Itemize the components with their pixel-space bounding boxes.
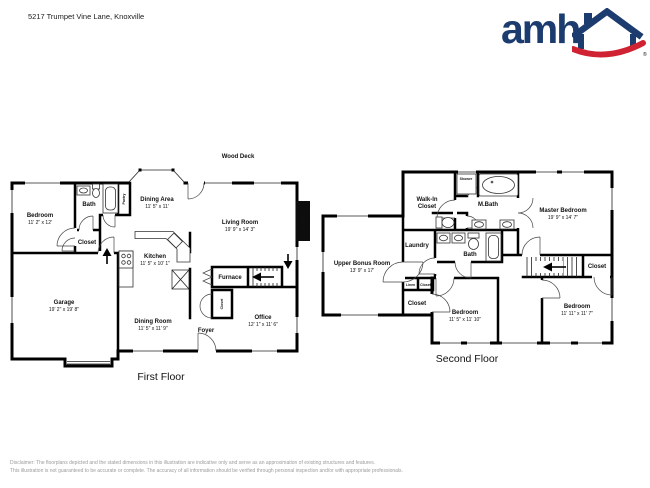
stove-icon [119,251,133,268]
label-closet-small: Closet [420,283,432,287]
first-floor-caption: First Floor [137,371,185,383]
label-office: Office [254,315,272,321]
label-bath2: Bath [463,252,477,258]
label-bedroom-right: Bedroom [564,304,590,310]
label-closet-stairs: Closet [588,264,606,270]
label-bedroom1: Bedroom [27,213,53,219]
label-closet1: Closet [78,240,96,246]
label-foyer: Foyer [198,328,215,334]
entry-up-arrow-icon [103,248,112,264]
staircase-second-floor [527,257,577,277]
toilet-icon [468,233,479,238]
label-dining-area: Dining Area [140,197,174,203]
floor1-doors [57,183,216,351]
dims-living-room: 19' 9" x 14' 3" [225,227,255,233]
second-floor-caption: Second Floor [436,353,499,365]
bay-window [127,169,187,185]
label-dining-room: Dining Room [134,319,171,325]
toilet-icon [436,217,442,228]
label-master-bedroom: Master Bedroom [539,208,586,214]
label-pantry: Pantry [122,194,126,205]
stairs-down-arrow-icon [284,254,293,269]
floor1-bath-fixtures [77,184,118,213]
label-bonus-room: Upper Bonus Room [334,261,390,267]
label-hall-closet: Closet [220,298,224,310]
garage-door [67,362,110,365]
label-kitchen: Kitchen [144,254,166,260]
dims-bedroom-right: 11' 11" x 11' 7" [561,311,593,317]
fireplace: Fireplace [296,201,310,241]
label-walk-in-closet-2: Closet [418,204,436,210]
label-laundry: Laundry [405,243,429,249]
staircase-first-floor [252,267,278,287]
disclaimer-line2: This illustration is not guaranteed to b… [10,467,403,475]
label-furnace: Furnace [218,275,242,281]
label-bath1: Bath [82,202,96,208]
disclaimer: Disclaimer: The floorplans depicted and … [10,459,403,475]
dims-bonus-room: 13' 9" x 17' [350,268,374,274]
fireplace-label: Fireplace [302,213,306,228]
label-walk-in-closet-1: Walk-In [416,197,437,203]
label-garage: Garage [54,300,75,306]
label-bedroom-left: Bedroom [452,310,478,316]
dims-dining-area: 11' 5" x 11' [145,204,169,210]
label-linen: Linen [406,283,415,287]
dims-master-bedroom: 19' 9" x 14' 7" [548,215,578,221]
dims-garage: 19' 2" x 19' 8" [49,307,79,313]
dims-kitchen: 11' 5" x 10' 1" [140,261,170,267]
label-shower: Shower [460,177,473,181]
first-floor-plan: Fireplace Wood Deck Bedroom 11' 2" x 12'… [10,154,310,383]
dims-office: 12' 1" x 11' 6" [248,322,278,328]
label-master-bath: M.Bath [478,202,498,208]
label-closet-hall: Closet [408,301,426,307]
disclaimer-line1: Disclaimer: The floorplans depicted and … [10,459,403,467]
floorplan-page: 5217 Trumpet Vine Lane, Knoxville amh ® [0,0,650,488]
dims-bedroom-left: 11' 5" x 11' 10" [449,317,481,323]
second-floor-plan: Walk-In Closet Shower M.Bath Master Bedr… [321,170,614,365]
dims-bedroom1: 11' 2" x 12' [28,220,52,226]
label-living-room: Living Room [222,220,258,226]
label-wood-deck: Wood Deck [222,154,255,160]
dims-dining-room: 11' 5" x 11' 9" [138,326,168,332]
